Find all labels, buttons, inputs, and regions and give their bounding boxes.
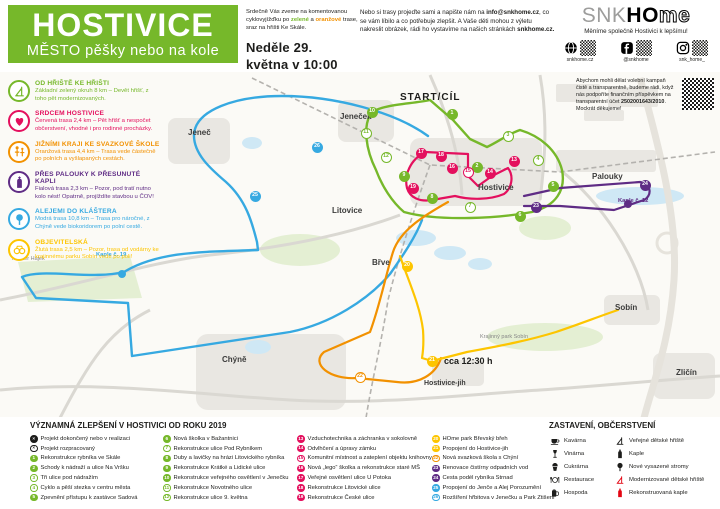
beer-icon [549,488,560,499]
qr-code [692,40,708,56]
map-label: Krajinný park Sobín [480,334,528,340]
social-label: snk_home_ [679,57,705,63]
map-marker: 14 [485,168,496,179]
map-label: Kaple č. 12 [618,198,648,204]
route-description: Žlutá trasa 2,5 km – Pozor, trasa od vod… [35,247,160,262]
item-number-badge: 10 [163,474,171,482]
map-marker: 15 [463,167,474,178]
map-marker: 19 [408,183,419,194]
map-marker: 20 [402,261,413,272]
improvements-heading: VÝZNAMNÁ ZLEPŠENÍ V HOSTIVICI OD ROKU 20… [30,421,226,430]
route-title: ALEJEMI DO KLÁŠTERA [35,208,160,215]
improvement-item: 23Renovace čistírny odpadních vod [432,463,550,473]
map-label: Jeneč [188,128,211,137]
social-label: snkhome.cz [567,57,594,63]
improvement-label: Veřejné osvětlení ulice U Potoka [308,475,391,481]
item-number-badge: 11 [163,484,171,492]
improvement-label: Rekonstrukce ulice Pod Rybníkem [174,446,263,452]
item-number-badge: × [30,445,38,453]
improvements-column-2: 6Nová školka v Bažantnici7Rekonstrukce u… [163,434,295,503]
event-poster: START/CÍLJenečekJenečHostiviceLitoviceBř… [0,0,720,509]
item-number-badge: 14 [297,445,305,453]
cake-icon [549,461,560,472]
improvement-label: Projekt dokončený nebo v realizaci [41,436,131,442]
route-legend-item: SRDCEM HOSTIVICEČervená trasa 2,4 km – P… [8,110,160,133]
map-marker: 26 [312,142,323,153]
map-label: Zličín [676,368,697,377]
improvement-item: 19Rekonstrukce České ulice [297,493,429,503]
playground-icon [8,80,30,102]
route-title: OBJEVITELSKÁ [35,239,160,246]
improvement-label: Cesta podél rybníka Strnad [443,475,513,481]
route-description: Fialová trasa 2,3 km – Pozor, pod tratí … [35,186,160,201]
stops-column-food: KavárnaVinárnaCukrárnaRestauraceHospoda [549,434,611,500]
item-number-badge: 19 [297,494,305,502]
improvement-item: 5Zpevnění přístupu k zastávce Sadová [30,493,162,503]
improvement-item: ×Projekt rozpracovaný [30,444,162,454]
map-marker: 6 [515,211,526,222]
item-number-badge: 7 [163,445,171,453]
map-marker: 25 [250,191,261,202]
stop-label: Modernizované dětské hřiště [629,477,704,483]
item-number-badge: 16 [297,465,305,473]
playground-icon [614,435,625,446]
map-marker: 21 [427,356,438,367]
improvement-label: Vzduchotechnika a záchranka v sokolovně [308,436,418,442]
stop-item: Veřejné dětské hřiště [614,434,718,447]
stop-label: Rekonstruovaná kaple [629,490,688,496]
improvement-label: Rekonstrukce Litovické ulice [308,485,381,491]
map-label: Břve [372,258,390,267]
stop-label: Veřejné dětské hřiště [629,438,684,444]
route-title: PŘES PALOUKY K PŘESUNUTÉ KAPLI [35,171,160,185]
improvement-item: 8Duby a lavičky na hrázi Litovického ryb… [163,454,295,464]
map-label: Litovice [332,206,362,215]
improvements-column-1: ×Projekt dokončený nebo v realizaci×Proj… [30,434,162,503]
route-legend-item: JIŽNÍMI KRAJI KE SVAZKOVÉ ŠKOLEOranžová … [8,141,160,164]
improvement-label: Rekonstrukce Novotného ulice [174,485,253,491]
website-name: snkhome.cz. [517,26,554,33]
improvement-item: 17Veřejné osvětlení ulice U Potoka [297,473,429,483]
map-marker: 11 [361,128,372,139]
improvement-item: 12Rekonstrukce ulice 9. května [163,493,295,503]
item-number-badge: 21 [432,445,440,453]
snkhome-logo: SNKHOme [560,5,712,26]
qr-code [580,40,596,56]
route-legend-item: ALEJEMI DO KLÁŠTERAModrá trasa 10,8 km –… [8,208,160,231]
improvement-label: Rekonstrukce Krátké a Lidické ulice [174,465,266,471]
map-marker: 9 [399,171,410,182]
improvement-label: Rozšíření hřbitova v Jenečku a Park Ztiš… [443,495,555,501]
improvements-column-3: 13Vzduchotechnika a záchranka v sokolovn… [297,434,429,503]
improvement-item: 9Rekonstrukce Krátké a Lidické ulice [163,463,295,473]
improvement-item: 7Rekonstrukce ulice Pod Rybníkem [163,444,295,454]
improvement-item: 1Rekonstrukce rybníka ve Skále [30,454,162,464]
improvement-label: Cyklo a pěší stezka v centru města [41,485,131,491]
brand-block: SNKHOme Měníme společně Hostivici k lepš… [560,5,712,63]
item-number-badge: 3 [30,474,38,482]
qr-code [636,40,652,56]
kaple-19-dot [118,270,126,278]
improvement-item: 21Propojení do Hostivice-jih [432,444,550,454]
map-marker: 18 [436,151,447,162]
improvement-label: Nová „lego“ školka a rekonstrukce staré … [308,465,420,471]
route-legend-item: OD HŘIŠTĚ KE HŘIŠTIZákladní zelený okruh… [8,80,160,103]
improvement-item: 15Komunitní místnost a zateplení objektu… [297,454,429,464]
item-number-badge: 23 [432,465,440,473]
improvement-item: 2Schody k nádraží a ulice Na Vršku [30,463,162,473]
stop-label: Restaurace [564,477,594,483]
improvement-label: Rekonstrukce ulice 9. května [174,495,248,501]
stop-item: Hospoda [549,487,611,500]
improvement-label: Rekonstrukce rybníka ve Skále [41,455,121,461]
map-label: Sobín [615,303,637,312]
stop-item: Rekonstruovaná kaple [614,487,718,500]
improvement-item: 24Cesta podél rybníka Strnad [432,473,550,483]
map-marker: 17 [416,148,427,159]
family-icon [8,141,30,163]
map-marker: 4 [533,155,544,166]
wine-icon [549,448,560,459]
playground-icon [614,475,625,486]
invitation-text: Srdečně Vás zveme na komentovanou cyklov… [246,9,358,74]
map-marker: 22 [355,372,366,383]
improvement-item: 13Vzduchotechnika a záchranka v sokolovn… [297,434,429,444]
improvement-item: 6Nová školka v Bažantnici [163,434,295,444]
stop-label: Kavárna [564,438,586,444]
item-number-badge: 4 [30,484,38,492]
binoculars-icon [8,239,30,261]
social-item: snk_home_ [676,40,708,63]
improvement-label: Projekt rozpracovaný [41,446,95,452]
stop-item: Kaple [614,447,718,460]
social-label: @snkhome [623,57,648,63]
item-number-badge: 5 [30,494,38,502]
item-number-badge: 2 [30,465,38,473]
item-number-badge: 8 [163,455,171,463]
map-marker: 10 [367,107,378,118]
improvement-label: Schody k nádraží a ulice Na Vršku [41,465,129,471]
stop-label: Vinárna [564,451,584,457]
improvement-item: ×Projekt dokončený nebo v realizaci [30,434,162,444]
improvement-item: 4Cyklo a pěší stezka v centru města [30,483,162,493]
social-item: @snkhome [620,40,652,63]
bank-account: 2502001643/2010 [621,99,664,105]
feedback-text: Nebo si trasy projeďte sami a napište ná… [360,9,556,35]
item-number-badge: 26 [432,494,440,502]
chapel-icon [614,448,625,459]
improvement-label: Rekonstrukce České ulice [308,495,375,501]
map-label: Hostivice [478,183,514,192]
route-description: Základní zelený okruh 8 km – Devět hřišť… [35,88,160,103]
map-label: Hostivice-jih [424,380,466,387]
coffee-icon [549,435,560,446]
map-marker: 1 [447,109,458,120]
stop-label: Cukrárna [564,464,588,470]
improvement-item: 22Nová svazková škola s Chýní [432,454,550,464]
tree-icon [8,208,30,230]
improvement-label: Komunitní místnost a zateplení objektu k… [308,455,432,461]
map-marker: 16 [447,163,458,174]
map-marker: 12 [381,152,392,163]
stops-heading: ZASTAVENÍ, OBČERSTVENÍ [549,421,655,430]
item-number-badge: 15 [297,455,305,463]
stops-column-places: Veřejné dětské hřištěKapleNové vysazené … [614,434,718,500]
item-number-badge: 1 [30,455,38,463]
item-number-badge: 18 [297,484,305,492]
improvement-label: Renovace čistírny odpadních vod [443,465,529,471]
stop-item: Nové vysazené stromy [614,460,718,473]
improvement-item: 3Tři ulice pod nádražím [30,473,162,483]
web-icon [564,41,578,55]
route-legend-item: OBJEVITELSKÁŽlutá trasa 2,5 km – Pozor, … [8,239,160,262]
route-legend-item: PŘES PALOUKY K PŘESUNUTÉ KAPLIFialová tr… [8,171,160,201]
chapel-icon [614,488,625,499]
instagram-icon [676,41,690,55]
stop-item: Vinárna [549,447,611,460]
map-marker: 13 [509,156,520,167]
donation-text: Abychom mohli dělat volební kampaň čistě… [576,78,678,113]
item-number-badge: 9 [163,465,171,473]
stop-item: Kavárna [549,434,611,447]
improvement-item: 18Rekonstrukce Litovické ulice [297,483,429,493]
item-number-badge: 6 [163,435,171,443]
contact-email: info@snkhome.cz [486,9,539,16]
social-links: snkhome.cz@snkhomesnk_home_ [560,40,712,63]
map-marker: 5 [548,181,559,192]
item-number-badge: × [30,435,38,443]
donation-qr-code [682,78,714,110]
improvement-label: Propojení do Hostivice-jih [443,446,509,452]
route-title: SRDCEM HOSTIVICE [35,110,160,117]
improvement-label: Nová svazková škola s Chýní [443,455,519,461]
map-marker: 24 [640,180,651,191]
restaurant-icon [549,475,560,486]
social-item: snkhome.cz [564,40,596,63]
orange-route-word: oranžové [315,17,341,23]
item-number-badge: 20 [432,435,440,443]
donation-note: Abychom mohli dělat volební kampaň čistě… [576,78,714,113]
improvement-item: 16Nová „lego“ školka a rekonstrukce star… [297,463,429,473]
stop-item: Cukrárna [549,460,611,473]
improvement-label: Zpevnění přístupu k zastávce Sadová [41,495,138,501]
improvement-item: 14Odvlhčení a úpravy zámku [297,444,429,454]
route-title: JIŽNÍMI KRAJI KE SVAZKOVÉ ŠKOLE [35,141,160,148]
improvement-label: Nová školka v Bažantnici [174,436,238,442]
item-number-badge: 24 [432,474,440,482]
route-description: Modrá trasa 10,8 km – Trasa pro náročné,… [35,216,160,231]
map-marker: 23 [531,202,542,213]
route-legend: OD HŘIŠTĚ KE HŘIŠTIZákladní zelený okruh… [8,80,160,269]
item-number-badge: 12 [163,494,171,502]
stop-item: Modernizované dětské hřiště [614,474,718,487]
improvement-item: 25Propojení do Jenče a Alej Porozumění [432,483,550,493]
map-label: Chýně [222,355,246,364]
green-route-word: zelené [291,17,309,23]
map-marker: 7 [465,202,476,213]
title-block: HOSTIVICE MĚSTO pěšky nebo na kole [8,5,238,63]
stop-label: Hospoda [564,490,588,496]
map-label: Palouky [592,172,623,181]
improvement-label: Duby a lavičky na hrázi Litovického rybn… [174,455,285,461]
poster-subtitle: MĚSTO pěšky nebo na kole [27,43,219,59]
improvement-label: HOme park Břevský břeh [443,436,508,442]
item-number-badge: 25 [432,484,440,492]
tree-icon [614,461,625,472]
improvement-label: Tři ulice pod nádražím [41,475,98,481]
item-number-badge: 17 [297,474,305,482]
improvement-item: 20HOme park Břevský břeh [432,434,550,444]
route-title: OD HŘIŠTĚ KE HŘIŠTI [35,80,160,87]
heart-icon [8,110,30,132]
poster-title: HOSTIVICE [32,9,213,41]
improvement-label: Propojení do Jenče a Alej Porozumění [443,485,542,491]
chapel-icon [8,171,30,193]
route-description: Oranžová trasa 4,4 km – Trasa vede částe… [35,149,160,164]
improvement-label: Rekonstrukce veřejného osvětlení v Jeneč… [174,475,289,481]
improvement-label: Odvlhčení a úpravy zámku [308,446,377,452]
facebook-icon [620,41,634,55]
stop-item: Restaurace [549,474,611,487]
map-label: cca 12:30 h [444,356,493,366]
improvement-item: 11Rekonstrukce Novotného ulice [163,483,295,493]
event-date: Neděle 29. května v 10:00 [246,39,358,74]
map-marker: 8 [427,193,438,204]
map-marker: 3 [503,131,514,142]
item-number-badge: 13 [297,435,305,443]
brand-tagline: Měníme společně Hostivici k lepšímu! [560,28,712,35]
improvement-item: 10Rekonstrukce veřejného osvětlení v Jen… [163,473,295,483]
route-description: Červená trasa 2,4 km – Pět hřišť a nespo… [35,118,160,133]
improvement-item: 26Rozšíření hřbitova v Jenečku a Park Zt… [432,493,550,503]
map-label: START/CÍL [400,92,460,103]
item-number-badge: 22 [432,455,440,463]
stop-label: Nové vysazené stromy [629,464,689,470]
stop-label: Kaple [629,451,644,457]
improvements-column-4: 20HOme park Břevský břeh21Propojení do H… [432,434,550,503]
